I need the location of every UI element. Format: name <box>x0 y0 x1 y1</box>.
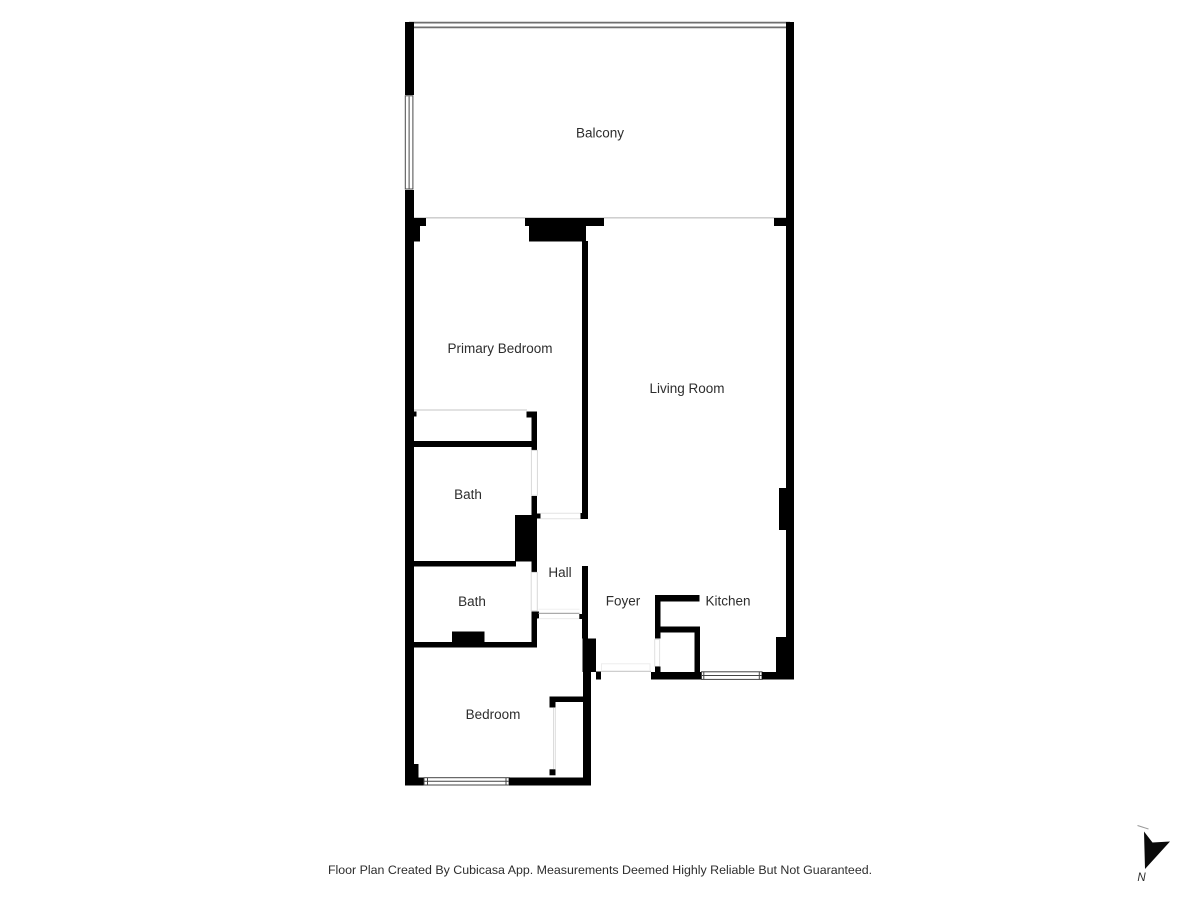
svg-text:Hall: Hall <box>548 565 571 580</box>
svg-text:Living Room: Living Room <box>649 381 724 396</box>
svg-text:Bedroom: Bedroom <box>466 707 521 722</box>
svg-text:Primary Bedroom: Primary Bedroom <box>447 341 552 356</box>
svg-text:Bath: Bath <box>454 487 482 502</box>
svg-text:Foyer: Foyer <box>606 594 641 609</box>
svg-text:Kitchen: Kitchen <box>705 594 750 609</box>
svg-text:N: N <box>1137 872 1146 884</box>
svg-text:Floor Plan Created By Cubicasa: Floor Plan Created By Cubicasa App. Meas… <box>328 863 872 877</box>
svg-text:Bath: Bath <box>458 594 486 609</box>
svg-text:Balcony: Balcony <box>576 126 624 141</box>
